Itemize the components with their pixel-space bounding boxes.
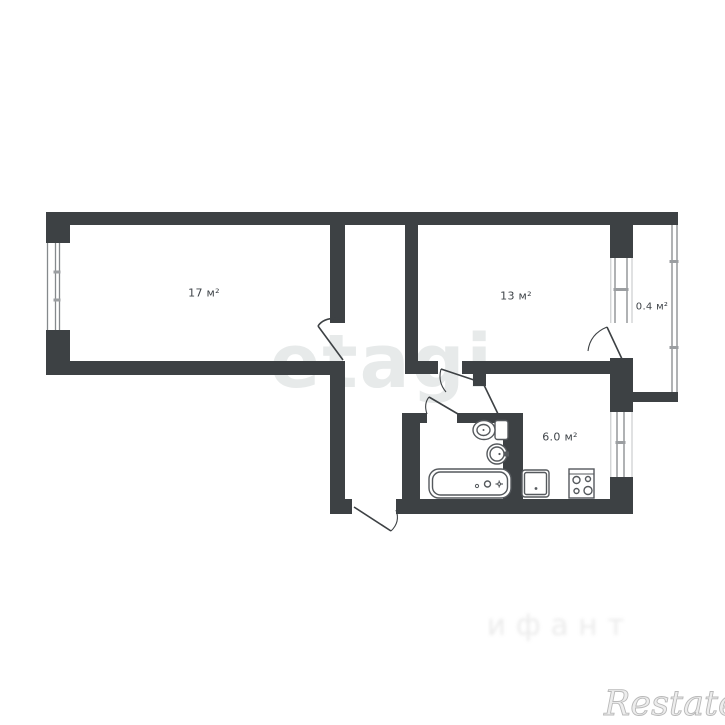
kitchen-door-icon <box>484 385 499 416</box>
bathtub-icon <box>429 469 511 498</box>
entrance-door-icon <box>354 507 397 531</box>
balcony-area-label: 0.4 м² <box>636 302 668 313</box>
wall-room17-bottom <box>46 361 345 375</box>
wall-corridor-left-upper <box>330 225 345 323</box>
stove-icon <box>569 469 594 498</box>
bathroom-door-icon <box>426 397 458 414</box>
wall-balcony-bottom-bar <box>633 392 678 402</box>
room-17-door-icon <box>318 318 343 360</box>
balcony-door-icon <box>588 327 622 359</box>
kitchen-window-icon <box>611 412 632 477</box>
room-17-window-icon <box>48 243 60 330</box>
wall-bottom-left-segment <box>330 499 352 514</box>
kitchen-area-label: 6.0 м² <box>542 431 578 444</box>
toilet-icon <box>473 421 508 440</box>
kitchen-fixtures <box>522 469 594 498</box>
floor-plan-canvas: etagi <box>0 0 725 725</box>
wall-top <box>46 212 678 225</box>
wall-balcony-upper-block <box>610 225 633 258</box>
wall-room13-bottom-right <box>462 361 610 374</box>
room-13-area-label: 13 м² <box>500 290 532 303</box>
wall-balcony-lower-block <box>610 358 633 412</box>
window-ticks <box>54 260 679 444</box>
wall-left-upper-block <box>46 225 70 243</box>
balcony-railing-icon <box>672 225 677 392</box>
wall-bathroom-left <box>402 423 420 499</box>
watermark-restate-logo: Restate <box>604 684 725 725</box>
watermark-faint-text: ифант <box>487 608 657 642</box>
wall-bottom-right-segment <box>396 499 633 514</box>
wall-corridor-left-lower <box>330 361 345 499</box>
kitchen-sink-icon <box>522 470 549 497</box>
wall-room13-bottom-left <box>405 361 438 374</box>
wall-corridor-right <box>405 225 418 362</box>
wall-left-lower-block <box>46 330 70 362</box>
room-17-area-label: 17 м² <box>188 287 220 300</box>
bathroom-fixtures <box>429 421 511 499</box>
window-symbols <box>48 225 678 477</box>
wall-bathroom-top-left <box>402 413 427 423</box>
